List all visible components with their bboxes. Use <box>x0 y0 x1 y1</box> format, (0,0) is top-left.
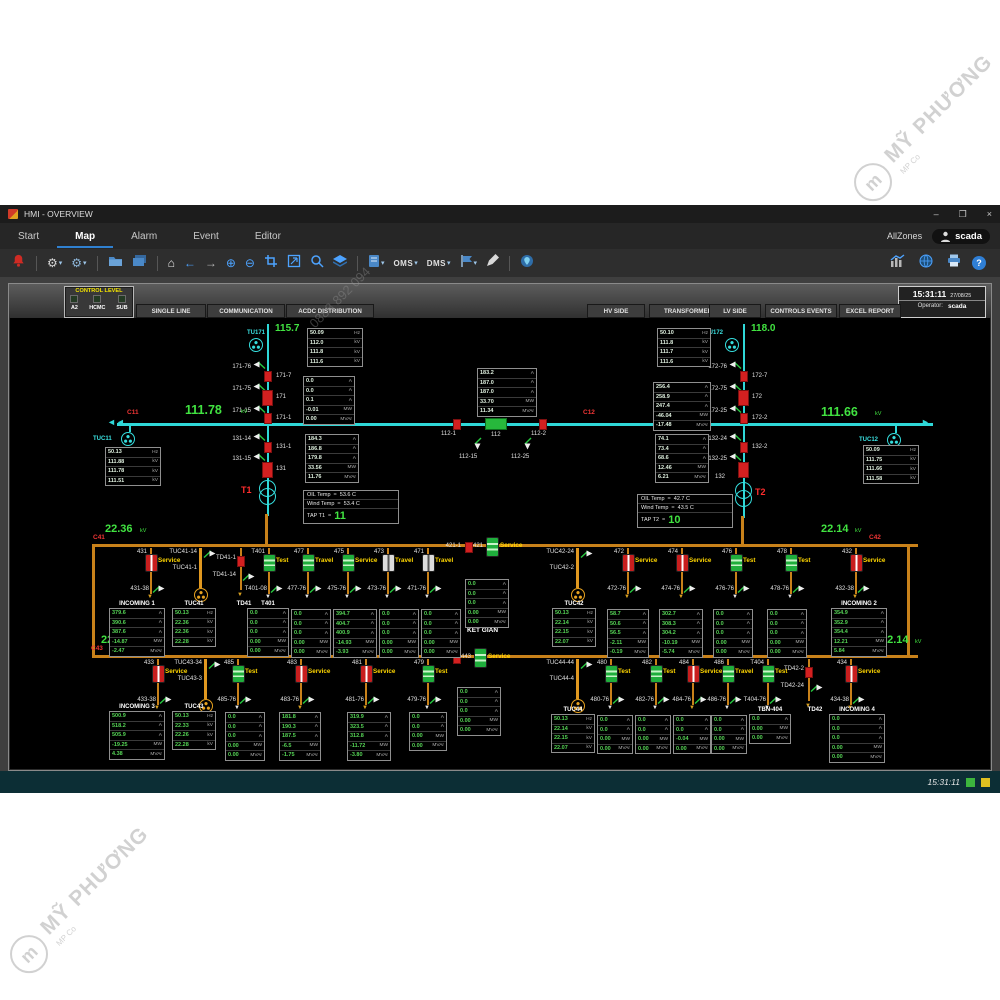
meter-value: 50.6 <box>610 621 621 627</box>
meter-box-td42: TD42 <box>801 707 829 714</box>
meter-row: 404.7A <box>334 620 376 630</box>
feeder-arrow-icon: ▼ <box>344 594 350 600</box>
toolbar: ⚙▾⚙▾⌂←→⊕⊖▾OMS▾DMS▾▾? <box>0 249 1000 277</box>
folder-button[interactable] <box>105 252 126 274</box>
bus-voltage-118kv: 118.0 <box>751 324 775 334</box>
earth-switch-431-38[interactable] <box>152 584 165 593</box>
disconnector-132-24[interactable] <box>729 432 742 441</box>
meter-unit: A <box>703 446 706 451</box>
breaker-state-481: Service <box>373 669 395 675</box>
breaker-473[interactable] <box>382 554 395 572</box>
meter-row: 111.8kV <box>308 348 362 358</box>
earth-switch-112-25[interactable] <box>523 437 532 450</box>
meter-row: 0.00MW <box>458 717 500 727</box>
meter-unit: A <box>455 621 458 626</box>
breaker-T404[interactable] <box>762 665 775 683</box>
disconnector-421-1[interactable] <box>465 542 473 553</box>
meter-value: 0.0 <box>382 611 390 617</box>
meter-unit: A <box>441 724 444 729</box>
meter-row: -5.74MVAr <box>660 648 702 657</box>
meter-row: 0.0A <box>714 629 752 639</box>
meter-row: 50.6A <box>608 620 648 630</box>
earth-switch-432-38[interactable] <box>857 584 870 593</box>
meter-value: 0.0 <box>716 630 724 636</box>
unit-label: kV <box>855 529 861 535</box>
meter-row: -17.48MVAr <box>654 421 710 430</box>
meter-unit: A <box>741 718 744 723</box>
transformer-label-t1: T1 <box>241 486 252 495</box>
tab-acdc-distribution[interactable]: ACDC DISTRIBUTION <box>286 304 374 318</box>
meter-row: -3.93MVAr <box>334 648 376 657</box>
breaker-475[interactable] <box>342 554 355 572</box>
disconnector-132-25[interactable] <box>729 452 742 461</box>
breaker-433[interactable] <box>152 665 165 683</box>
meter-value: 258.9 <box>656 394 670 400</box>
zone-selector[interactable]: AllZones <box>887 231 922 241</box>
arrester-icon-TUC42-2[interactable] <box>571 588 585 602</box>
meter-value: 0.0 <box>714 727 722 733</box>
chevron-down-icon: ▾ <box>83 259 87 267</box>
meter-value: 302.7 <box>662 611 676 617</box>
switch-label: 131-14 <box>217 436 251 442</box>
meter-value: 387.6 <box>112 629 126 635</box>
meter-unit: A <box>159 611 162 616</box>
disconnector-171-15[interactable] <box>253 404 266 413</box>
feeder-arrow-icon: ▼ <box>424 705 430 711</box>
breaker-131[interactable] <box>262 462 273 478</box>
world-clock-button[interactable] <box>916 252 936 275</box>
breaker-485[interactable] <box>232 665 245 683</box>
feeder-label-478: 478 <box>763 549 787 555</box>
meter-unit: MVAr <box>870 755 882 760</box>
earth-switch-474-76[interactable] <box>683 584 696 593</box>
feeder-arrow-icon: ▼ <box>237 592 243 598</box>
bus-voltage-115kv: 115.7 <box>275 324 299 334</box>
meter-unit: MVAr <box>494 620 506 625</box>
meter-value: 0.0 <box>468 600 476 606</box>
meter-box-c112: 183.2A187.0A187.0A33.70MW11.34MVAr <box>477 368 537 417</box>
meter-unit: A <box>353 446 356 451</box>
meter-unit: A <box>503 601 506 606</box>
meter-value: 0.0 <box>294 621 302 627</box>
meter-unit: MW <box>347 465 356 470</box>
meter-box-tuc42: TUC4250.13Hz22.14kV22.15kV22.07kV <box>552 601 596 647</box>
meter-row: 0.00MVAr <box>226 751 264 760</box>
breaker-state-475: Service <box>355 558 377 564</box>
breaker-471[interactable] <box>422 554 435 572</box>
tab-excel-report[interactable]: EXCEL REPORT <box>839 304 901 318</box>
meter-value: -14.93 <box>336 640 352 646</box>
layers-button[interactable] <box>330 252 350 274</box>
disconnector-112-2[interactable] <box>539 419 547 430</box>
meter-unit: MVAr <box>634 650 646 655</box>
meter-value: 50.09 <box>866 447 880 453</box>
disconnector-TD41-1[interactable] <box>237 556 245 567</box>
disconnector-131-15[interactable] <box>253 452 266 461</box>
meter-row: 0.0A <box>466 580 508 590</box>
printer-icon <box>947 254 961 272</box>
pencil-button[interactable] <box>483 252 502 274</box>
menu-item-event[interactable]: Event <box>175 225 237 248</box>
breaker-state-472: Service <box>635 558 657 564</box>
switch-label: 131-15 <box>217 456 251 462</box>
breaker-172-2[interactable] <box>740 413 748 424</box>
earth-switch-476-76[interactable] <box>737 584 750 593</box>
earth-switch-112-15[interactable] <box>473 437 482 450</box>
meter-value: 58.7 <box>610 611 621 617</box>
arrester-icon-TUC41-1[interactable] <box>194 588 208 602</box>
breaker-472[interactable] <box>622 554 635 572</box>
breaker-T401[interactable] <box>263 554 276 572</box>
meter-value: 0.0 <box>832 735 840 741</box>
meter-value: 0.0 <box>600 727 608 733</box>
meter-unit: A <box>325 621 328 626</box>
switch-label-486-76: 486-76 <box>698 697 726 703</box>
zoom-out-button[interactable]: ⊖ <box>242 255 258 271</box>
control-level-label: SUB <box>116 305 127 311</box>
meter-value: 0.0 <box>460 699 468 705</box>
meter-box-f480: 0.0A0.0A0.00MW0.00MVAr <box>597 715 633 754</box>
meter-row: -6.5MW <box>280 742 320 752</box>
meter-value: 22.07 <box>555 639 569 645</box>
maximize-button[interactable]: ❐ <box>959 209 967 220</box>
breaker-481[interactable] <box>360 665 373 683</box>
breaker-478[interactable] <box>785 554 798 572</box>
tap-row: TAP T1=11 <box>304 509 398 523</box>
breaker-483[interactable] <box>295 665 308 683</box>
tab-controls-events[interactable]: CONTROLS EVENTS <box>765 304 837 318</box>
meter-unit: MW <box>153 742 162 747</box>
crop-button[interactable] <box>261 252 281 275</box>
meter-value: 0.00 <box>382 640 393 646</box>
transformer-t1[interactable] <box>259 480 277 506</box>
breaker-480[interactable] <box>605 665 618 683</box>
meter-value: 0.00 <box>228 743 239 749</box>
meter-box-f481: 319.9A323.5A312.8A-11.72MW-3.80MVAr <box>347 712 391 761</box>
breaker-state-471: Travel <box>435 558 453 564</box>
control-level-indicator[interactable] <box>70 295 78 303</box>
arrester-icon-tuc11 <box>121 432 135 446</box>
search-icon <box>310 254 324 273</box>
meter-unit: MW <box>875 639 884 644</box>
breaker-112[interactable] <box>485 418 507 430</box>
disconnector-112-1[interactable] <box>453 419 461 430</box>
breaker-label: 172 <box>752 394 762 400</box>
meter-values: 0.0A0.0A0.0A0.00MW0.00MVAr <box>291 609 331 658</box>
earth-switch-TD42-24[interactable] <box>810 683 823 692</box>
breaker-421[interactable] <box>486 537 499 557</box>
meter-row: 187.5A <box>280 732 320 742</box>
feeder-label-477: 477 <box>280 549 304 555</box>
meter-unit: A <box>879 726 882 731</box>
menu-item-editor[interactable]: Editor <box>237 225 299 248</box>
menu-item-map[interactable]: Map <box>57 225 113 248</box>
meter-row: 0.00MVAr <box>248 647 288 656</box>
breaker-172-7[interactable] <box>740 371 748 382</box>
temperature-panel-t2: OIL Temp=42.7 CWind Temp=43.5 CTAP T2=10 <box>637 494 733 528</box>
meter-row: 50.10Hz <box>658 329 710 339</box>
meter-unit: A <box>747 621 750 626</box>
earth-switch-479-76[interactable] <box>429 695 442 704</box>
earth-switch-485-76[interactable] <box>239 695 252 704</box>
trend-chart-button[interactable] <box>887 252 908 274</box>
meter-unit: kV <box>207 620 213 625</box>
meter-unit: MVAr <box>404 650 416 655</box>
meter-row: 181.8A <box>280 713 320 723</box>
meter-value: 0.00 <box>832 745 843 751</box>
notes-button[interactable]: ▾ <box>365 252 388 275</box>
disconnector-172-76[interactable] <box>729 360 742 369</box>
meter-value: 184.3 <box>308 436 322 442</box>
meter-unit: A <box>495 690 498 695</box>
meter-title: TUC42 <box>552 601 596 607</box>
switch-label-474-76: 474-76 <box>652 586 680 592</box>
earth-switch-434-38[interactable] <box>852 695 865 704</box>
close-button[interactable]: × <box>987 209 992 220</box>
meter-value: 0.00 <box>460 718 471 724</box>
breaker-486[interactable] <box>722 665 735 683</box>
temp-value: = <box>668 496 671 502</box>
meter-unit: kV <box>207 639 213 644</box>
breaker-state-473: Travel <box>395 558 413 564</box>
search-button[interactable] <box>307 252 327 275</box>
resize-button[interactable] <box>284 252 304 275</box>
bus-kv-c41: 22.36 <box>105 524 133 535</box>
meter-unit: kV <box>152 469 158 474</box>
switch-label-483-76: 483-76 <box>271 697 299 703</box>
settings-gear-button[interactable]: ⚙▾ <box>44 255 65 271</box>
meter-value: 68.6 <box>658 455 669 461</box>
disconnector-172-25[interactable] <box>729 404 742 413</box>
status-ok-indicator <box>966 778 975 787</box>
meter-unit: A <box>159 620 162 625</box>
forward-arrow-button[interactable]: → <box>202 255 220 271</box>
home-button[interactable]: ⌂ <box>165 255 178 271</box>
meter-unit: MW <box>343 407 352 412</box>
meter-row: 50.09Hz <box>308 329 362 339</box>
breaker-132[interactable] <box>738 462 749 478</box>
breaker-171-1[interactable] <box>264 413 272 424</box>
meter-value: 56.5 <box>610 630 621 636</box>
service-gear-button[interactable]: ⚙▾ <box>68 255 89 271</box>
bus-label-c11: C11 <box>127 410 139 417</box>
meter-value: 0.00 <box>752 726 763 732</box>
breaker-482[interactable] <box>650 665 663 683</box>
meter-unit: kV <box>152 478 158 483</box>
meter-box-inc1: INCOMING 1379.6A390.6A387.6A-14.87MW-2.4… <box>109 601 165 657</box>
meter-value: 33.70 <box>480 399 494 405</box>
feeder-label-481: 481 <box>338 660 362 666</box>
alarm-bell-button[interactable] <box>8 251 29 275</box>
meter-value: 111.8 <box>660 340 673 346</box>
meter-unit: A <box>531 390 534 395</box>
earth-switch-T404-76[interactable] <box>769 695 782 704</box>
earth-switch-472-76[interactable] <box>629 584 642 593</box>
earth-switch-483-76[interactable] <box>302 695 315 704</box>
meter-row: 0.0A <box>768 610 806 620</box>
tab-hv-side[interactable]: HV SIDE <box>587 304 645 318</box>
alarm-bell-icon <box>11 253 26 273</box>
breaker-state-486: Travel <box>735 669 753 675</box>
temp-row: Wind Temp=43.5 C <box>638 504 732 513</box>
meter-unit: A <box>747 612 750 617</box>
arrester-label-tuc12: TUC12 <box>859 437 878 443</box>
meter-value: 404.7 <box>336 621 350 627</box>
breaker-171-7[interactable] <box>264 371 272 382</box>
earth-switch-TD41-14[interactable] <box>242 572 255 581</box>
tab-communication[interactable]: COMMUNICATION <box>207 304 285 318</box>
earth-switch-471-76[interactable] <box>429 584 442 593</box>
meter-row: 0.00MVAr <box>458 726 500 735</box>
earth-switch-480-76[interactable] <box>612 695 625 704</box>
meter-row: 247.4A <box>654 402 710 412</box>
folder-copy-button[interactable] <box>129 252 150 274</box>
zoom-in-button[interactable]: ⊕ <box>223 255 239 271</box>
meter-box-tuc12: 50.09Hz111.75kV111.66kV111.58kV <box>863 445 919 484</box>
breaker-479[interactable] <box>422 665 435 683</box>
meter-row: 0.0A <box>674 716 710 726</box>
breaker-state-476: Test <box>743 558 755 564</box>
meter-row: 111.8kV <box>658 339 710 349</box>
breaker-443[interactable] <box>474 648 487 668</box>
meter-row: 0.00MW <box>226 742 264 752</box>
earth-switch-478-76[interactable] <box>792 584 805 593</box>
meter-values: 500.9A518.2A505.9A-19.25MW4.38MVAr <box>109 711 165 760</box>
flag-button[interactable]: ▾ <box>457 252 481 274</box>
meter-row: 0.00MVAr <box>674 745 710 754</box>
meter-row: 0.0A <box>598 726 632 736</box>
disconnector-TD42-2[interactable] <box>805 667 813 678</box>
feeder-label-434: 434 <box>823 660 847 666</box>
meter-row: -1.75MVAr <box>280 751 320 760</box>
earth-switch-481-76[interactable] <box>367 695 380 704</box>
disconnector-131-14[interactable] <box>253 432 266 441</box>
breaker-label: 171-7 <box>276 373 291 379</box>
breaker-476[interactable] <box>730 554 743 572</box>
meter-value: 0.00 <box>294 649 305 655</box>
meter-unit: MW <box>435 734 444 739</box>
dms-menu[interactable]: DMS▾ <box>424 257 454 270</box>
earth-switch-433-38[interactable] <box>159 695 172 704</box>
breaker-434[interactable] <box>845 665 858 683</box>
meter-value: 112.0 <box>310 340 323 346</box>
meter-value: 11.76 <box>308 474 321 480</box>
meter-values: 0.0A0.0A-0.04MW0.00MVAr <box>673 715 711 754</box>
meter-values: 50.13Hz22.33kV22.26kV22.28kV <box>172 711 216 750</box>
meter-values: 181.8A190.3A187.5A-6.5MW-1.75MVAr <box>279 712 321 761</box>
control-level-indicator[interactable] <box>118 295 126 303</box>
meter-value: 33.56 <box>308 465 322 471</box>
arrester-label: TUC44-4 <box>542 676 574 682</box>
map-pin-button[interactable] <box>517 252 537 275</box>
control-level-indicator[interactable] <box>93 295 101 303</box>
temp-value: Wind Temp <box>307 501 334 507</box>
meter-value: 0.00 <box>250 639 261 645</box>
switch-label: 421-1 <box>433 543 461 549</box>
meter-values: 394.7A404.7A400.9A-14.93MW-3.93MVAr <box>333 609 377 658</box>
feeder-arrow-icon: ▼ <box>689 705 695 711</box>
meter-unit: MW <box>691 640 700 645</box>
arrester-icon-tu172 <box>725 338 739 352</box>
meter-row: 0.0A <box>458 707 500 717</box>
disconnector-TUC42-24[interactable] <box>580 549 593 558</box>
breaker-474[interactable] <box>676 554 689 572</box>
meter-row: 0.0A <box>768 629 806 639</box>
meter-unit: A <box>881 611 884 616</box>
watermark-text: MỸ PHƯƠNG <box>879 50 997 168</box>
page: m MỸ PHƯƠNG MP Co m MỸ PHƯƠNG MP Co 0888… <box>0 0 1000 1000</box>
meter-unit: kV <box>702 359 708 364</box>
meter-value: 0.0 <box>228 724 236 730</box>
feeder-label-486: 486 <box>700 660 724 666</box>
meter-box-tu171_i: 0.0A0.0A0.1A-0.01MW0.00MVAr <box>303 376 355 425</box>
user-chip[interactable]: scada <box>932 229 990 244</box>
meter-row: 500.9A <box>110 712 164 722</box>
back-arrow-button[interactable]: ← <box>181 255 199 271</box>
switch-label-T404-76: T404-76 <box>738 697 766 703</box>
watermark-text: MỸ PHƯƠNG <box>36 822 154 940</box>
unit-label: kV <box>140 529 146 535</box>
breaker-484[interactable] <box>687 665 700 683</box>
meter-value: 0.0 <box>228 714 236 720</box>
feeder-arrow-icon: ▼ <box>652 705 658 711</box>
meter-value: 181.8 <box>282 714 296 720</box>
disconnector-171-76[interactable] <box>253 360 266 369</box>
meter-unit: A <box>879 717 882 722</box>
feeder-label-485: 485 <box>210 660 234 666</box>
meter-value: 0.0 <box>294 630 302 636</box>
meter-value: 0.0 <box>638 717 646 723</box>
meter-unit: MW <box>365 640 374 645</box>
meter-value: 312.8 <box>350 733 364 739</box>
meter-value: -1.75 <box>282 752 295 758</box>
tab-lv-side[interactable]: LV SIDE <box>709 304 761 318</box>
meter-row: 505.9A <box>110 731 164 741</box>
breaker-432[interactable] <box>850 554 863 572</box>
meter-row: 111.51kV <box>106 477 160 486</box>
meter-value: 0.00 <box>306 416 317 422</box>
breaker-431[interactable] <box>145 554 158 572</box>
meter-unit: MW <box>153 639 162 644</box>
meter-value: 50.13 <box>175 610 189 616</box>
oms-menu[interactable]: OMS▾ <box>390 257 420 270</box>
switch-label: 112-25 <box>511 454 529 460</box>
tab-single-line[interactable]: SINGLE LINE <box>136 304 206 318</box>
feeder-label-472: 472 <box>600 549 624 555</box>
minimize-button[interactable]: – <box>934 209 939 220</box>
feeder-label-471: 471 <box>400 549 424 555</box>
bus-label-c12: C12 <box>583 410 595 417</box>
transformer-t2[interactable] <box>735 482 753 508</box>
switch-label-433-38: 433-38 <box>128 697 156 703</box>
meter-value: 0.0 <box>424 630 432 636</box>
meter-row: 179.8A <box>306 454 358 464</box>
feeder-label-476: 476 <box>708 549 732 555</box>
help-button[interactable]: ? <box>972 256 986 270</box>
meter-box-tuc43: TUC4350.13Hz22.33kV22.26kV22.28kV <box>172 704 216 750</box>
meter-values: 183.2A187.0A187.0A33.70MW11.34MVAr <box>477 368 537 417</box>
menu-item-alarm[interactable]: Alarm <box>113 225 175 248</box>
menu-item-start[interactable]: Start <box>0 225 57 248</box>
meter-unit: A <box>531 380 534 385</box>
meter-title: INCOMING 2 <box>831 601 887 607</box>
meter-unit: MVAr <box>340 417 352 422</box>
printer-button[interactable] <box>944 252 964 274</box>
breaker-477[interactable] <box>302 554 315 572</box>
switch-label-478-76: 478-76 <box>761 586 789 592</box>
meter-row: 308.3A <box>660 620 702 630</box>
meter-unit: A <box>159 733 162 738</box>
